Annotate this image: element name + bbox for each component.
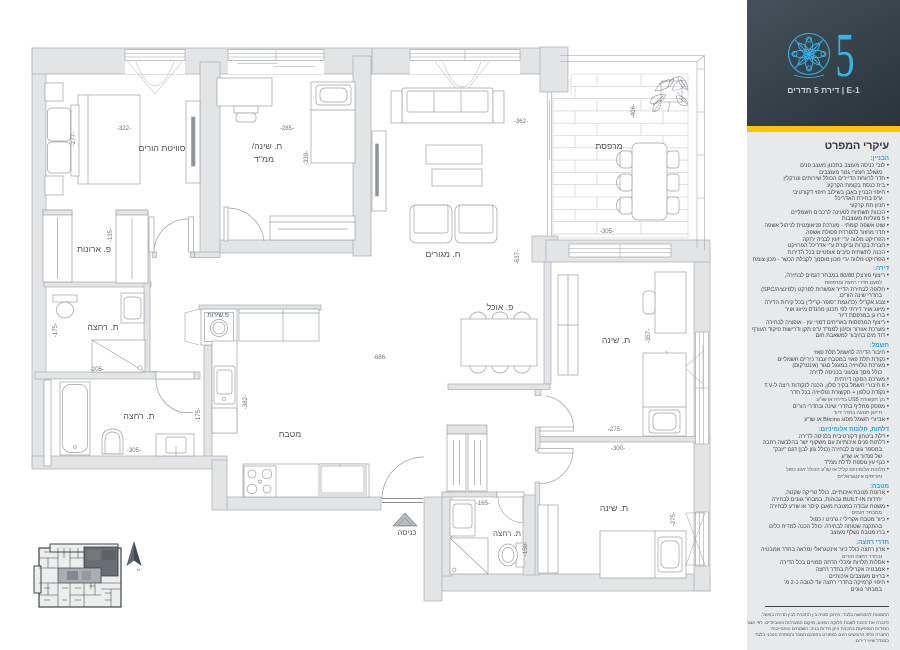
svg-text:-277-: -277- [70, 132, 77, 146]
svg-text:מטבח: מטבח [279, 429, 302, 439]
svg-text:-300-: -300- [611, 445, 625, 452]
svg-text:פ. אוכל: פ. אוכל [487, 302, 514, 312]
svg-text:כניסה: כניסה [398, 528, 417, 537]
svg-text:-305-: -305- [600, 228, 614, 235]
svg-text:-305-: -305- [127, 447, 141, 454]
svg-text:-150-: -150- [522, 542, 529, 556]
svg-text:-285-: -285- [280, 125, 294, 132]
svg-text:-275-: -275- [670, 512, 677, 526]
svg-text:ח. מגורים: ח. מגורים [425, 249, 460, 259]
svg-text:-406-: -406- [630, 104, 637, 118]
svg-text:-322-: -322- [117, 125, 131, 132]
svg-text:סוויטת הורים: סוויטת הורים [139, 143, 186, 153]
svg-text:-135-: -135- [107, 228, 114, 242]
svg-text:-362-: -362- [514, 118, 528, 125]
svg-text:-205-: -205- [90, 366, 104, 373]
svg-text:5: 5 [835, 22, 854, 90]
svg-text:ת. רחצה: ת. רחצה [123, 411, 154, 421]
svg-text:-339-: -339- [303, 151, 310, 165]
svg-text:N: N [137, 567, 140, 572]
svg-text:-637-: -637- [514, 250, 521, 264]
svg-text:-382-: -382- [242, 395, 249, 409]
svg-text:-275-: -275- [608, 426, 622, 433]
svg-text:-175-: -175- [52, 323, 59, 337]
svg-text:ח. שינה/: ח. שינה/ [252, 141, 283, 151]
svg-text:ת. רחצה: ת. רחצה [493, 529, 521, 538]
svg-text:-175-: -175- [195, 408, 202, 422]
svg-text:-165-: -165- [476, 500, 490, 507]
svg-text:ממ"ד: ממ"ד [254, 154, 274, 164]
svg-text:-686-: -686- [373, 354, 387, 361]
svg-text:מרפסת: מרפסת [595, 141, 622, 151]
svg-text:ת. שינה: ת. שינה [600, 503, 628, 513]
svg-text:ת. רחצה: ת. רחצה [87, 322, 118, 332]
svg-text:-357-: -357- [645, 329, 652, 343]
svg-text:פ. ארונות: פ. ארונות [77, 244, 111, 254]
svg-text:ת. שינה: ת. שינה [602, 335, 630, 345]
svg-text:פ.שירות: פ.שירות [207, 312, 229, 319]
